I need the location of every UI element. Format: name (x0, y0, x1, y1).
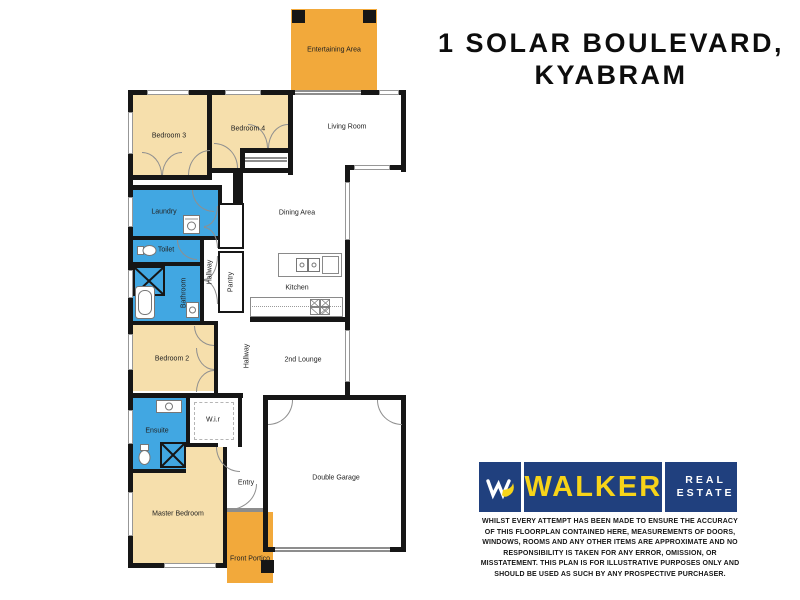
sliding-door (295, 90, 361, 95)
entertaining-post (292, 10, 305, 23)
bathtub-icon (135, 286, 155, 319)
label-bathroom: Bathroom (181, 278, 188, 308)
entertaining-post (363, 10, 376, 23)
window (345, 182, 350, 240)
window (164, 563, 216, 568)
wall (128, 175, 212, 180)
label-wir: W.i.r (206, 417, 220, 424)
walker-logo-realestate: REAL ESTATE (665, 462, 737, 512)
real-text: REAL (685, 474, 726, 487)
wall (186, 398, 190, 443)
page-title: 1 SOLAR BOULEVARD, KYABRAM (425, 28, 797, 92)
walker-w-icon (484, 471, 516, 503)
label-hallway2: Hallway (244, 344, 251, 369)
window (128, 492, 133, 536)
wall (233, 168, 243, 206)
label-portico: Front Portico (230, 556, 270, 563)
address-line2: KYABRAM (425, 60, 797, 92)
label-bedroom2: Bedroom 2 (155, 356, 189, 363)
label-kitchen: Kitchen (285, 285, 308, 292)
disclaimer-text: WHILST EVERY ATTEMPT HAS BEEN MADE TO EN… (477, 517, 743, 580)
label-bedroom4: Bedroom 4 (231, 126, 265, 133)
wall (212, 168, 290, 173)
window (128, 334, 133, 370)
garage-door (275, 547, 390, 552)
ensuite-toilet-icon (136, 444, 152, 466)
walker-logo-mark (479, 462, 521, 512)
kitchen-sink-icon (296, 258, 320, 272)
window (128, 197, 133, 227)
label-lounge2: 2nd Lounge (285, 357, 322, 364)
wall (240, 148, 288, 153)
label-master: Master Bedroom (152, 511, 204, 518)
vanity-icon (186, 302, 199, 318)
window (225, 90, 261, 95)
wall (401, 90, 406, 172)
door-arc (268, 400, 293, 425)
walker-logo-brand: WALKER (524, 462, 662, 512)
window (345, 330, 350, 382)
estate-text: ESTATE (677, 487, 735, 500)
wall (214, 325, 218, 395)
toilet-icon (137, 243, 157, 258)
stove-icon (310, 299, 330, 315)
wall (186, 443, 218, 447)
label-ensuite: Ensuite (145, 428, 168, 435)
wall (133, 321, 218, 325)
label-living: Living Room (328, 124, 367, 131)
label-dining: Dining Area (279, 210, 315, 217)
window (379, 90, 399, 95)
robe-sliding-door (245, 157, 287, 162)
label-laundry: Laundry (151, 209, 176, 216)
ensuite-vanity-icon (156, 400, 182, 413)
label-hallway1: Hallway (207, 260, 214, 285)
wall (238, 398, 242, 447)
brand-text: WALKER (524, 471, 662, 504)
door-arc (377, 400, 402, 425)
label-entry: Entry (238, 480, 254, 487)
label-garage: Double Garage (312, 475, 359, 482)
window (128, 410, 133, 444)
label-entertaining: Entertaining Area (307, 47, 361, 54)
ensuite-shower-icon (160, 442, 186, 468)
wall (288, 90, 293, 175)
window (128, 112, 133, 154)
window (147, 90, 189, 95)
label-toilet: Toilet (158, 247, 174, 254)
address-line1: 1 SOLAR BOULEVARD, (425, 28, 797, 60)
door-arc (229, 484, 257, 510)
linen-closet (218, 203, 244, 249)
washing-machine-icon (183, 215, 200, 234)
wall (133, 469, 186, 473)
walker-logo: WALKER REAL ESTATE (479, 462, 737, 512)
wall (250, 317, 345, 322)
label-pantry: Pantry (228, 272, 235, 292)
kitchen-appliance (322, 256, 339, 274)
wall (390, 547, 406, 552)
window (354, 165, 390, 170)
label-bedroom3: Bedroom 3 (152, 133, 186, 140)
wall (263, 547, 275, 552)
